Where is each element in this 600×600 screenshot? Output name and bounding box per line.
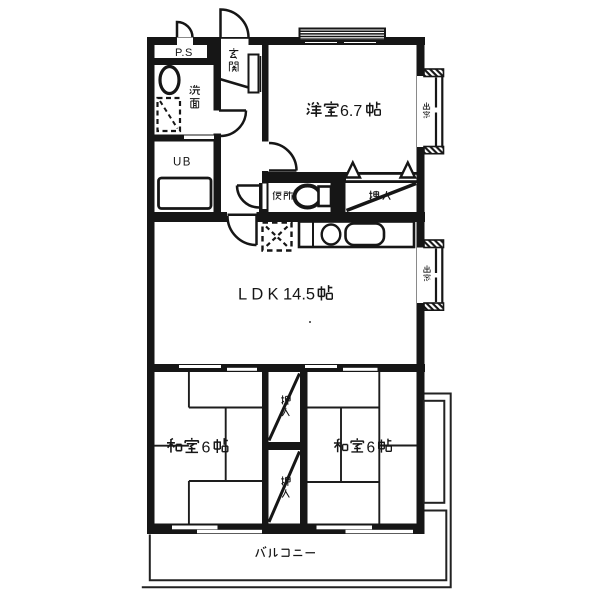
- svg-text:UB: UB: [173, 157, 192, 169]
- svg-text:14.5: 14.5: [283, 286, 315, 304]
- svg-text:LDK: LDK: [238, 286, 283, 304]
- svg-text:6: 6: [202, 440, 211, 457]
- svg-text:6: 6: [367, 440, 376, 457]
- svg-text:P.S: P.S: [175, 47, 193, 59]
- svg-text:6.7: 6.7: [340, 103, 362, 120]
